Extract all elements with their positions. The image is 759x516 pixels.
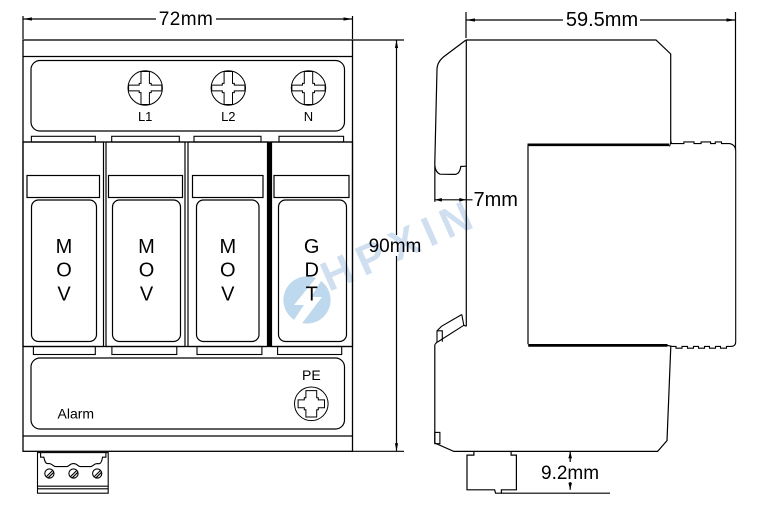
svg-text:O: O	[56, 260, 72, 282]
svg-text:59.5mm: 59.5mm	[566, 9, 638, 31]
svg-text:O: O	[220, 260, 236, 282]
svg-text:V: V	[140, 283, 154, 305]
svg-text:V: V	[221, 283, 235, 305]
svg-text:72mm: 72mm	[159, 9, 213, 30]
svg-text:M: M	[219, 236, 236, 258]
svg-text:M: M	[138, 236, 155, 258]
svg-text:G: G	[304, 236, 320, 258]
svg-text:D: D	[304, 260, 318, 282]
svg-text:L2: L2	[221, 109, 235, 124]
svg-text:90mm: 90mm	[369, 236, 422, 257]
svg-text:N: N	[304, 109, 313, 124]
svg-text:T: T	[306, 283, 318, 305]
svg-text:L1: L1	[138, 109, 152, 124]
svg-text:Alarm: Alarm	[58, 406, 95, 422]
svg-text:9.2mm: 9.2mm	[541, 463, 599, 484]
svg-text:7mm: 7mm	[474, 189, 518, 211]
svg-text:M: M	[56, 236, 73, 258]
svg-text:O: O	[139, 260, 155, 282]
svg-text:V: V	[57, 283, 71, 305]
svg-text:PE: PE	[302, 367, 321, 383]
